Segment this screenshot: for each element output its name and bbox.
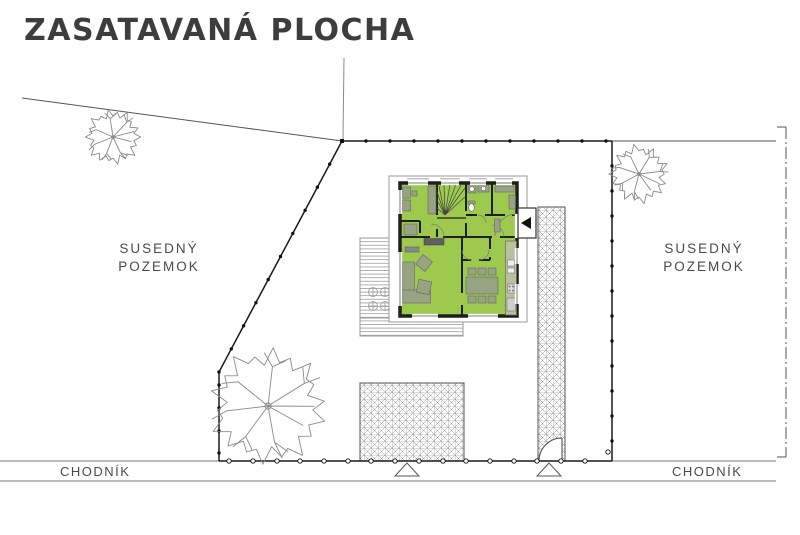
right-parcel-line1: SUSEDNÝ [649,240,759,258]
right-parcel-line2: POZEMOK [649,258,759,276]
gate-marker-icon-left [395,463,419,476]
house-plan [389,176,536,322]
tree-icon-top-left [85,110,140,164]
tree-icon-top-right [598,133,679,214]
left-parcel-line2: POZEMOK [104,258,214,276]
left-parcel-line1: SUSEDNÝ [104,240,214,258]
sidewalk-label-left: CHODNÍK [60,464,130,479]
gate-marker-icon-right [537,463,561,476]
sidewalk-label-right: CHODNÍK [672,464,742,479]
entrance [518,208,536,238]
driveway-strip [538,207,565,461]
neighbor-boundary-diagonal [22,98,342,141]
right-parcel-label: SUSEDNÝ POZEMOK [649,240,759,276]
title-leader-line [343,58,344,140]
paved-area-bottom [360,383,464,461]
site-plan-canvas: ZASATAVANÁ PLOCHA SUSEDNÝ POZEMOK SUSEDN… [0,0,800,535]
page-title: ZASATAVANÁ PLOCHA [24,13,415,48]
tree-icon-bottom-left [197,335,340,476]
right-property-line [777,127,786,457]
gate-markers [395,463,561,476]
left-parcel-label: SUSEDNÝ POZEMOK [104,240,214,276]
